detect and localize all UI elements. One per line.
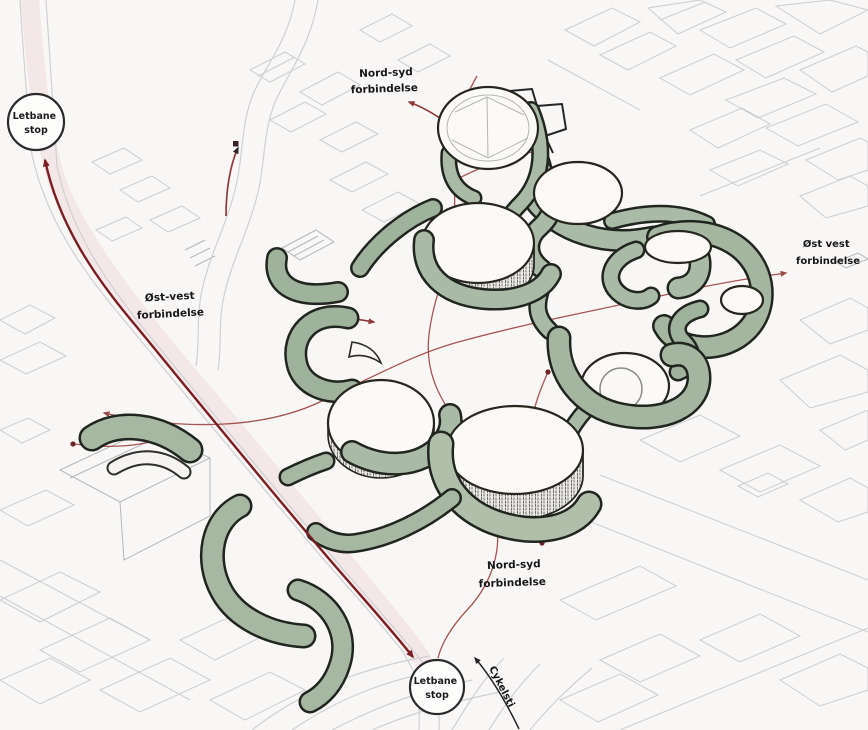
letbane-top-line1: Letbane: [13, 111, 56, 122]
letbane-bottom-line2: stop: [425, 690, 449, 701]
letbane-bottom-line1: Letbane: [414, 676, 457, 687]
building-ellipse: [721, 286, 763, 314]
building-dome: [438, 87, 538, 169]
letbane-stop-top: Letbane stop: [8, 94, 64, 150]
letbane-stop-bottom: Letbane stop: [410, 660, 464, 714]
building-ellipse: [645, 231, 711, 263]
masterplan-diagram: Letbane stop Letbane stop Nord-syd forbi…: [0, 0, 868, 730]
building-ellipse: [534, 162, 622, 224]
letbane-top-line2: stop: [24, 125, 48, 136]
